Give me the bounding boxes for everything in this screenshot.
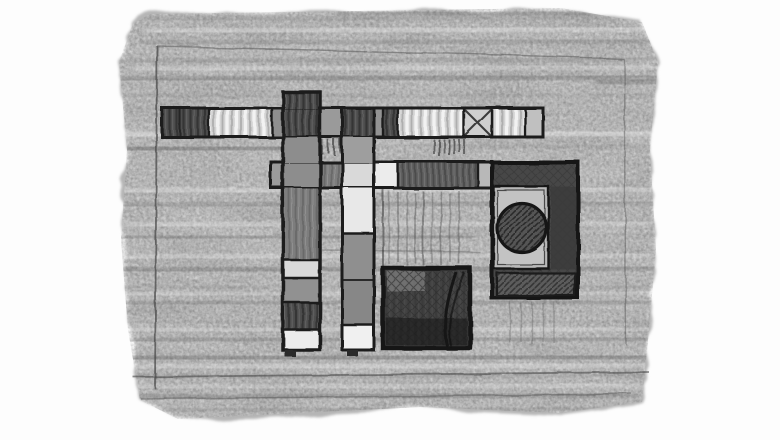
strip-segment <box>344 233 373 280</box>
strip-segment <box>344 325 373 349</box>
band1-cell <box>492 110 525 136</box>
strip-segment <box>344 137 373 163</box>
band2-cell <box>478 164 492 187</box>
band2-cell <box>375 164 398 187</box>
band2-cell <box>343 164 374 187</box>
column-segment <box>285 92 318 109</box>
band1-cell <box>164 110 181 136</box>
highlight-streak <box>135 384 640 388</box>
band1-cell <box>180 110 209 136</box>
right-square-margin <box>551 187 576 269</box>
highlight-streak <box>124 364 650 368</box>
column-foot <box>285 350 296 357</box>
strip-segment <box>344 188 373 233</box>
column-segment <box>285 260 318 278</box>
band1-cell <box>398 110 464 136</box>
band2-cell <box>283 164 320 187</box>
band1-cell <box>320 110 341 136</box>
smudge-streak <box>125 356 655 359</box>
sketch-photo: Hand-drawn charcoal and graphite abstrac… <box>0 0 780 440</box>
column-segment <box>285 303 318 330</box>
band1-cell <box>209 110 272 136</box>
column-segment <box>285 278 318 303</box>
column-segment <box>285 188 318 260</box>
band1-cell <box>525 110 543 136</box>
hatched-circle-hatch <box>499 205 545 251</box>
highlight-streak <box>150 28 640 32</box>
strip-segment <box>344 280 373 325</box>
band1-cell <box>283 110 320 136</box>
band1-cell <box>341 110 374 136</box>
smudge-streak <box>140 40 650 44</box>
smudge-streak <box>600 80 660 84</box>
highlight-streak <box>135 66 650 70</box>
smudge-streak <box>122 76 660 80</box>
column-segment <box>285 330 318 349</box>
band2-cell <box>320 164 342 187</box>
band1-cell <box>383 110 398 136</box>
strip-foot <box>347 350 358 356</box>
band2-cell <box>398 164 478 187</box>
dark-square-shadow <box>386 318 467 345</box>
column-segment <box>285 137 318 163</box>
smudge-streak <box>118 147 300 150</box>
sketch-canvas: Hand-drawn charcoal and graphite abstrac… <box>0 0 780 440</box>
bottom-hatched-band-hatch <box>498 274 574 295</box>
